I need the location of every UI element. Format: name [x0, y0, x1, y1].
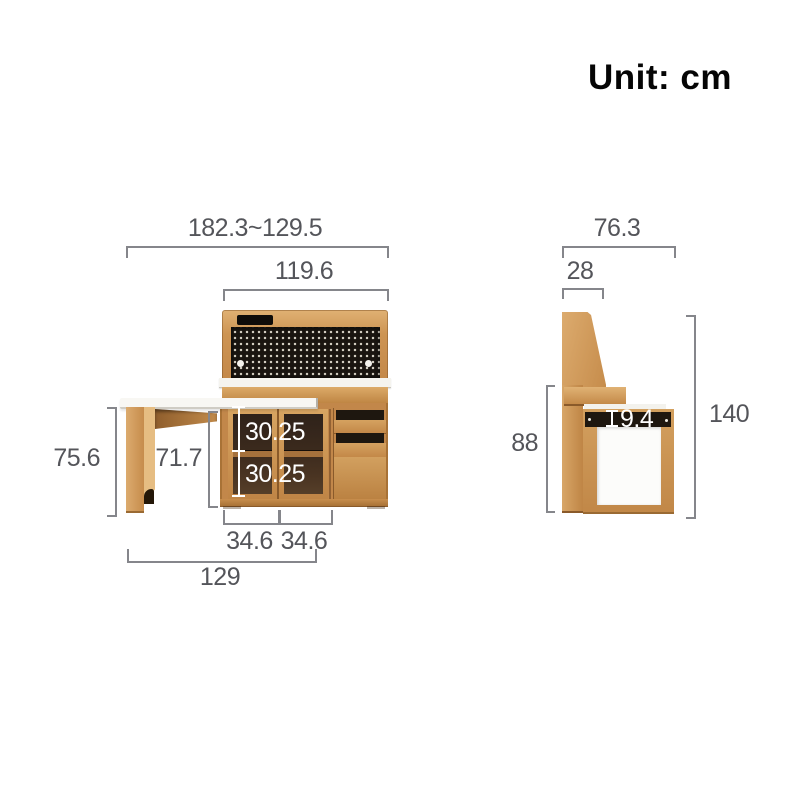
table-leg-arch-shadow [144, 489, 154, 504]
dim-opening-height-bracket [208, 411, 218, 508]
dim-hutch-width-label: 119.6 [223, 259, 385, 284]
dim-total-width-label: 182.3~129.5 [115, 216, 395, 241]
door-stile-line [329, 409, 331, 499]
dim-shelf-line [238, 407, 240, 497]
foot-shadow-left [223, 506, 241, 509]
side-back-panel-upper [562, 312, 606, 387]
dim-shelf-tick-top [232, 406, 245, 408]
drawer-1-pull [336, 410, 384, 420]
dim-total-depth-label: 76.3 [562, 216, 672, 241]
base-bottom-rail [220, 499, 388, 507]
dim-top-depth-label: 28 [556, 259, 604, 284]
door-shelf-right [284, 450, 323, 457]
slot-screw-left [588, 418, 591, 421]
peg-hook-left [237, 360, 244, 367]
dim-table-height-bracket [107, 407, 117, 517]
dim-counter-height-label: 88 [466, 431, 538, 456]
pegboard-panel [231, 327, 380, 378]
dim-door-right-bracket [279, 510, 333, 525]
dim-shelf-lower-label: 30.25 [245, 462, 305, 487]
side-open-compartment [597, 427, 661, 505]
slot-screw-right [665, 419, 668, 422]
dim-hutch-width-bracket [223, 289, 389, 301]
dim-shelf-tick-bottom [232, 495, 245, 497]
dim-table-height-label: 75.6 [28, 446, 100, 471]
foot-shadow-right [367, 506, 385, 509]
dim-table-width-bracket [127, 549, 317, 563]
drawer-1 [334, 420, 386, 434]
furniture-dimension-diagram: Unit: cm [0, 0, 800, 800]
dim-shelf-upper-label: 30.25 [245, 420, 305, 445]
dim-slot-height-label: 9.4 [620, 407, 653, 432]
dim-counter-height-bracket [546, 385, 555, 513]
dim-opening-height-label: 71.7 [128, 446, 202, 471]
drawer-2 [334, 443, 386, 458]
peg-hook-right [365, 360, 372, 367]
drawer-2-pull [336, 433, 384, 443]
dim-slot-tick-top [606, 410, 618, 412]
dim-shelf-tick-mid [232, 450, 245, 452]
dim-total-height-bracket [686, 315, 696, 519]
dim-door-left-bracket [223, 510, 280, 525]
drawer-3 [334, 457, 386, 499]
dim-table-width-label: 129 [127, 565, 313, 590]
dim-total-height-label: 140 [709, 402, 749, 427]
unit-label: Unit: cm [588, 60, 732, 95]
dim-slot-tick-bottom [606, 425, 618, 427]
dim-total-width-bracket [126, 246, 389, 258]
led-light-bar [237, 315, 273, 325]
dim-top-depth-bracket [562, 288, 604, 299]
